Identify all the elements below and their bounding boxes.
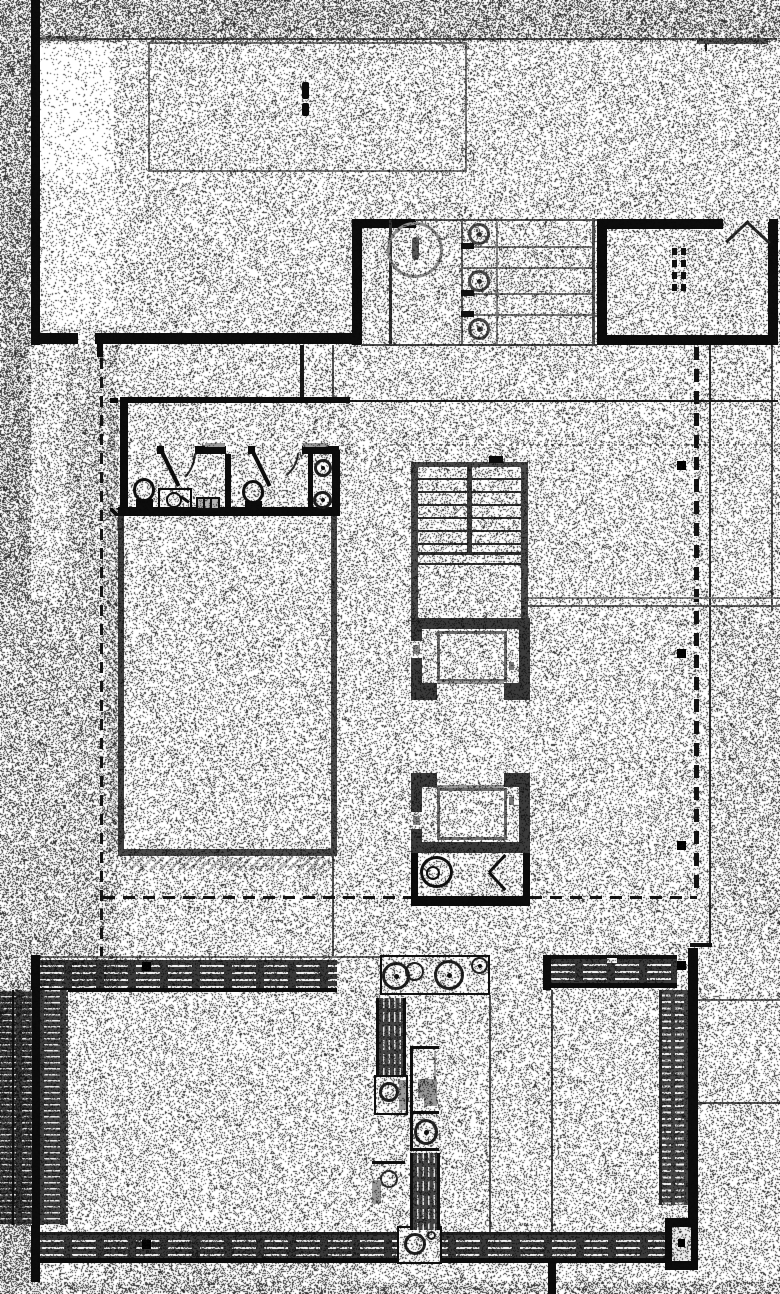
stair-divider [467,462,472,554]
right-wall [688,948,698,1218]
elevator2-wall-bottom [411,842,530,853]
bath-heater [196,497,220,510]
stall-stub-1 [461,243,474,249]
line-x710 [709,345,711,944]
bandA-bottomline [40,988,337,992]
shaft-wall-left [411,462,418,620]
bath-heater-bar1 [203,499,205,508]
floorplan-sheet: Scanned architectural floor plan, black … [0,0,780,1294]
stall-partition-2 [463,267,593,269]
ksink-notch [418,1098,424,1106]
bath-toilet1-base [136,499,153,508]
room2-wall-bottom [597,335,778,345]
kcounter-top [410,1046,439,1049]
elevator1-mech-mark [509,662,514,670]
bath-basin2-dot [321,498,325,502]
column-circle-pin [412,237,419,260]
stall-stub-2 [461,290,474,296]
bath-wall-left [120,397,128,516]
ink-blot-a [302,82,309,99]
grid-dot-2 [677,649,686,658]
kring-small [380,1170,398,1188]
stall-partition-4 [463,314,593,316]
toilet-dot-1 [477,232,482,237]
stalls-line-inner [496,222,498,345]
kitchen-sink-ring [404,1233,426,1255]
room2-wall-top [597,219,723,229]
hall-wall-right [331,516,337,849]
bath-threshold-b [303,443,328,447]
bandC-dot [142,1240,151,1249]
kstrip2-right [437,1153,440,1230]
kfixture-shade [399,1080,406,1110]
stall-partition-3 [463,293,593,295]
line-x551-mid [551,990,553,1232]
stair-tread-7 [418,563,521,565]
kstrip2-body [413,1153,437,1230]
burner-small-1 [405,962,424,981]
burner-dot-2 [447,973,452,978]
stall-stub-3 [461,311,474,317]
elevator2-wall-right [519,773,530,853]
hall-wall-left [118,516,124,856]
room1-wall-bottom-a [31,333,78,344]
kline-horizontal [372,1161,405,1164]
bath-toilet2-base [245,501,262,509]
ktoilet-wall-bottom [410,1148,439,1151]
kline-gray [434,1051,436,1079]
wc-wall-right [523,853,530,898]
shaft-wall-right [521,462,528,620]
elevator2-mech-mark [509,797,514,805]
bath-wall-top [122,397,350,403]
ink-blot-b [302,103,309,116]
kstrip1-right [403,998,406,1076]
room1-wall-right [352,221,362,345]
room1-door-stub [97,344,103,357]
bath-heater-bar2 [210,499,212,508]
dotted-line-y445 [390,444,780,446]
bath-basin1-dot [321,466,325,470]
right-stair-flight [662,990,688,1205]
bandA-body [40,960,337,988]
bath-shower-ring [166,492,182,508]
grid-dot-1 [677,461,686,470]
elevator2-cab [437,788,507,840]
deck-wall [32,990,40,1282]
stall-partition-1 [463,246,593,248]
post-dot [678,1239,685,1247]
bandB-notch [607,958,617,963]
bandA-topline [40,956,337,958]
elevator2-notch-mark [413,816,420,825]
ktoilet-dot [424,1130,429,1135]
kcounter-left [410,1046,413,1116]
right-line-b [698,1102,780,1104]
line-x333-lower [332,856,334,956]
document-description: Scanned architectural floor plan, black … [0,0,1,1]
toilet-dot-2 [477,279,482,284]
ktoilet-wall-left [410,1116,413,1151]
line-x772 [771,345,773,610]
kitchen-sink-small [427,1231,436,1240]
wc-basin-inner [426,866,440,880]
wc-door-leaf-b [488,871,507,891]
mid-line-y345 [361,344,597,346]
gridline-x697 [694,347,699,897]
bath-partition-a [195,446,226,454]
toilet-dot-3 [477,327,482,332]
dashed-line-y897-a [103,896,411,899]
bath-wall-right [332,450,340,516]
bandC-bottomline [40,1258,665,1263]
bandC-body [40,1235,665,1258]
corridor-top-line [415,219,597,221]
kblob-gray [372,1180,381,1204]
bandB-cap [543,955,551,990]
site-boundary-line [33,38,777,40]
kfixture-ring [379,1082,399,1102]
bath-stall-divider [225,454,231,510]
bath-door-arc-1 [162,452,196,488]
wc-door-leaf-a [488,854,507,874]
line-x490 [489,995,491,1232]
stalls-line-right [592,218,595,345]
burner-dot-3 [478,964,482,968]
room2-door-leaf-b [746,221,771,244]
line-x333-upper [332,345,334,400]
bandA-cap [31,955,40,992]
right-wall-elbow [690,943,712,947]
room1-wall-bottom-b [95,333,361,344]
elevator1-wall-br [504,683,530,700]
room2-radiator-b [681,248,686,296]
bridge-line-b [528,605,780,607]
deck-inner-line [12,990,14,1225]
right-line-a [698,999,780,1001]
elevator1-wall-bl [411,683,437,700]
bandA-dot [142,962,151,971]
elevator1-notch-mark [413,645,420,654]
bath-top-stub [110,398,118,403]
boundary-cap-right [697,40,768,44]
elevator1-wall-top [411,618,530,629]
hall-wall-bottom [118,849,337,856]
bandB-bottomline [551,983,677,988]
hall-insulation-bottom [124,857,330,870]
burner-dot-1 [394,974,399,979]
wall-x551-low [548,1262,556,1294]
dashed-line-y897-b [530,896,697,899]
grid-dot-4 [677,961,686,970]
room2-wall-left [597,219,607,345]
hall-insulation-left [107,415,118,850]
link-line-y957 [337,956,380,958]
stalls-line-left [461,220,463,345]
bridge-line-a [528,597,780,599]
link-line-x301 [300,345,304,401]
kcounter-bottom [410,1111,439,1114]
boundary-tick [705,44,707,51]
boundary-cap-left [43,36,87,41]
room1-wall-left [31,0,40,345]
room2-radiator-a [672,248,677,296]
grid-dot-3 [677,841,686,850]
kstrip1-body [379,998,403,1076]
elevator1-door-sill [437,681,504,684]
elevator1-cab [437,631,507,682]
wc-wall-bottom [411,896,530,906]
bath-threshold-a [205,443,225,447]
stair-tick [489,456,503,463]
